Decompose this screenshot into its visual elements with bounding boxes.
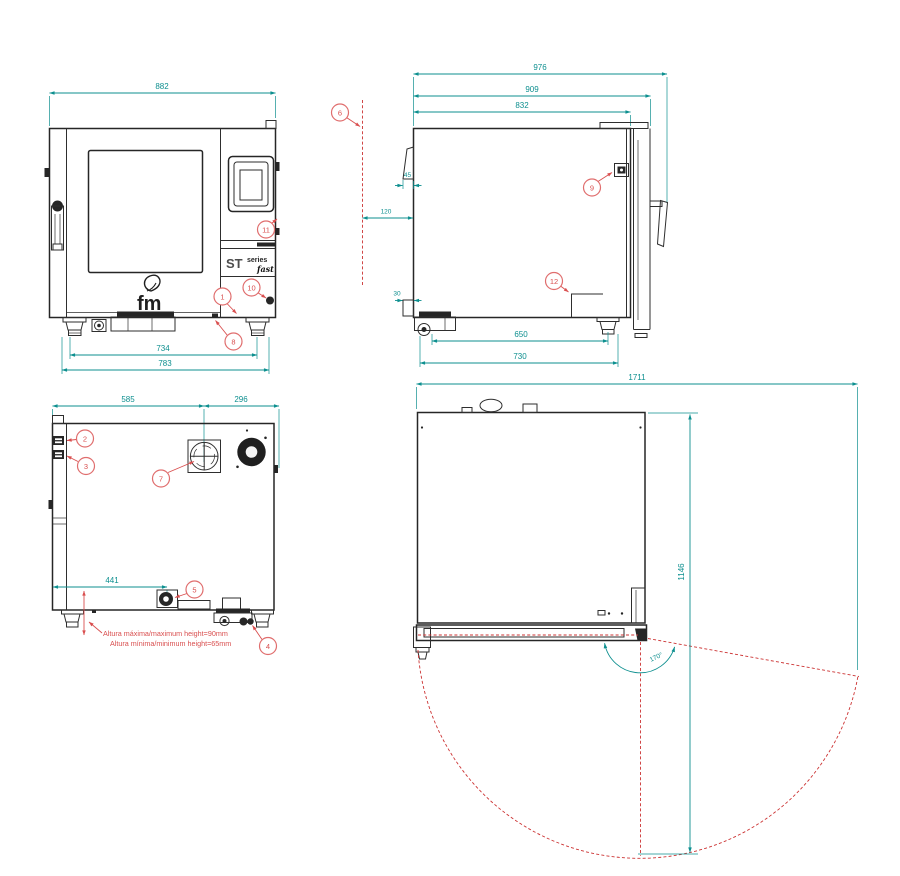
dim-label-730: 730 (513, 352, 527, 361)
svg-text:5: 5 (192, 585, 196, 594)
dim-label-1711: 1711 (628, 373, 646, 382)
dim-label-45: 45 (404, 172, 412, 179)
height-note-max: Altura máxima/maximum height=90mm (103, 629, 228, 638)
svg-text:8: 8 (231, 337, 235, 346)
dim-label-734: 734 (156, 344, 170, 353)
dim-label-585: 585 (121, 395, 135, 404)
svg-text:1: 1 (220, 292, 224, 301)
series-logo-word: series (247, 257, 267, 264)
svg-text:10: 10 (247, 283, 255, 292)
dim-label-1146: 1146 (677, 563, 686, 581)
series-logo-script: fast (256, 264, 274, 274)
oven-dimensional-drawing: 882 (0, 0, 900, 876)
svg-text:9: 9 (590, 183, 594, 192)
svg-text:2: 2 (83, 434, 87, 443)
dim-label-832: 832 (515, 101, 529, 110)
svg-text:7: 7 (159, 474, 163, 483)
background (0, 0, 900, 876)
dim-label-120: 120 (381, 209, 392, 216)
dim-label-783: 783 (158, 359, 172, 368)
rear-right-nub (274, 465, 278, 473)
dim-label-650: 650 (514, 330, 528, 339)
svg-text:6: 6 (338, 108, 342, 117)
dim-label-296: 296 (234, 395, 248, 404)
svg-text:4: 4 (266, 642, 270, 651)
dim-label-976: 976 (533, 63, 547, 72)
height-note-min: Altura mínima/minimum height=65mm (110, 639, 231, 648)
technical-drawing-canvas: 882 (0, 0, 900, 876)
dim-label-441: 441 (105, 576, 119, 585)
svg-text:3: 3 (84, 462, 88, 471)
dim-label-882: 882 (155, 82, 169, 91)
dim-label-30: 30 (393, 291, 401, 298)
power-button (266, 297, 274, 305)
left-edge-nub (45, 168, 50, 177)
series-logo-st: ST (226, 256, 243, 271)
svg-text:12: 12 (550, 277, 558, 286)
svg-text:11: 11 (262, 225, 270, 234)
dim-label-909: 909 (525, 85, 539, 94)
